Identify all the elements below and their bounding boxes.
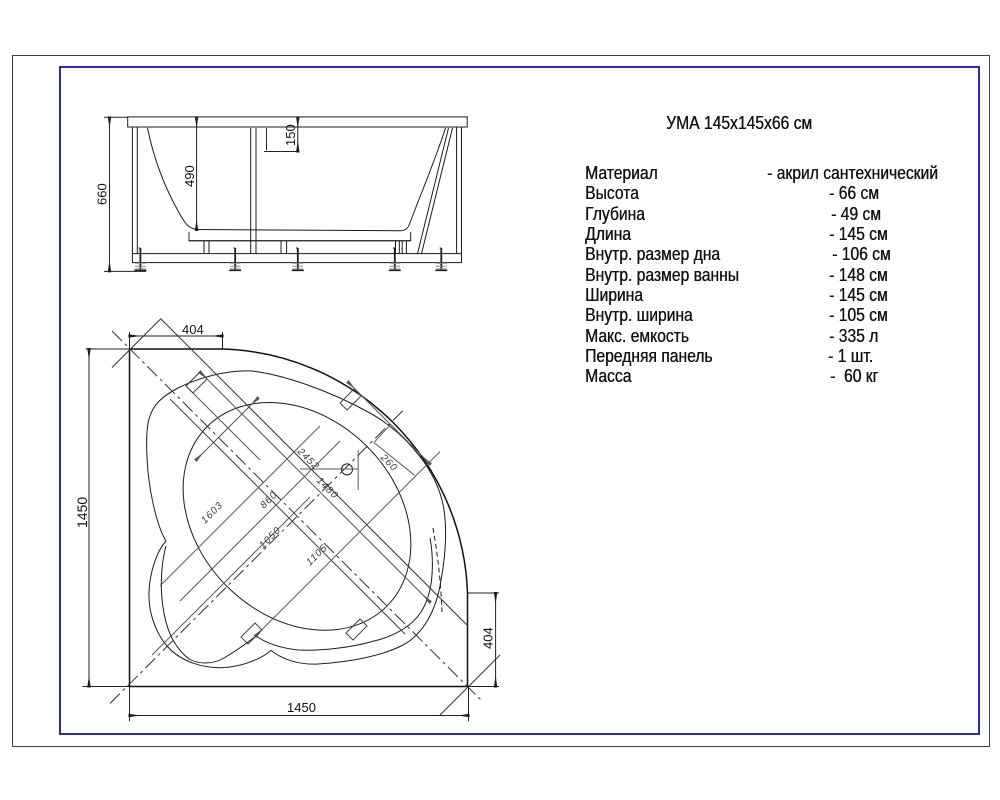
svg-text:260: 260 bbox=[377, 452, 399, 474]
svg-text:1450: 1450 bbox=[74, 497, 90, 528]
svg-text:490: 490 bbox=[182, 165, 197, 187]
svg-text:1050: 1050 bbox=[257, 525, 283, 551]
svg-text:1450: 1450 bbox=[287, 700, 316, 715]
svg-text:660: 660 bbox=[95, 183, 110, 205]
svg-text:860: 860 bbox=[258, 489, 280, 511]
svg-text:1480: 1480 bbox=[314, 475, 340, 501]
svg-text:150: 150 bbox=[283, 124, 298, 146]
svg-text:1603: 1603 bbox=[199, 500, 225, 526]
svg-text:404: 404 bbox=[481, 627, 496, 649]
svg-text:404: 404 bbox=[182, 322, 204, 337]
